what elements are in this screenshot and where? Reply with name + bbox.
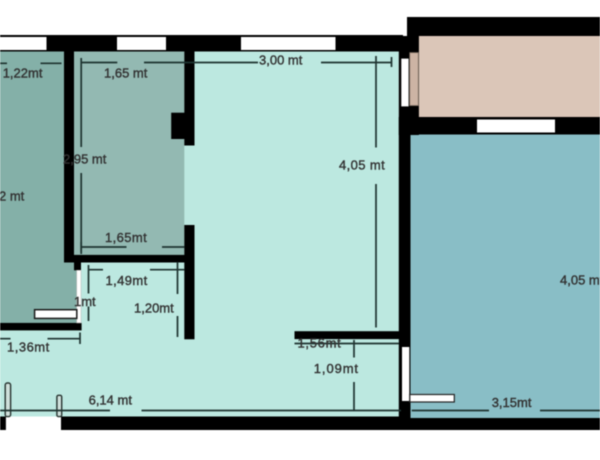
svg-text:4,05 mt: 4,05 mt [560, 273, 600, 288]
svg-text:1,49mt: 1,49mt [106, 273, 148, 288]
svg-text:6,14 mt: 6,14 mt [89, 393, 133, 408]
svg-text:3,15mt: 3,15mt [492, 395, 532, 410]
svg-text:1,20mt: 1,20mt [134, 301, 174, 316]
svg-text:3,00 mt: 3,00 mt [259, 53, 303, 68]
svg-text:1,56mt: 1,56mt [298, 336, 342, 351]
svg-text:1,36mt: 1,36mt [7, 339, 50, 354]
svg-text:4,05 mt: 4,05 mt [339, 158, 385, 173]
svg-text:2 mt: 2 mt [0, 189, 25, 204]
svg-text:1,65mt: 1,65mt [105, 230, 147, 245]
svg-text:1,65 mt: 1,65 mt [104, 66, 148, 81]
svg-text:2,95 mt: 2,95 mt [63, 152, 107, 167]
svg-text:1mt: 1mt [74, 294, 96, 309]
svg-text:1,22mt: 1,22mt [3, 66, 43, 81]
svg-text:1,09mt: 1,09mt [314, 361, 359, 376]
